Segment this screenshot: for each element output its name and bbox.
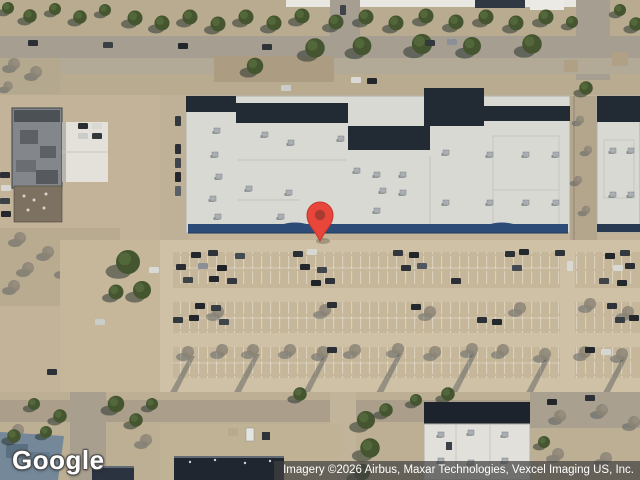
pin-dot	[315, 210, 325, 220]
imagery-attribution: Imagery ©2026 Airbus, Maxar Technologies…	[274, 461, 640, 480]
parking-lot	[47, 240, 640, 400]
strip-mall-building	[160, 81, 597, 249]
pin-shadow	[316, 238, 330, 244]
map-viewport[interactable]: Google Imagery ©2026 Airbus, Maxar Techn…	[0, 0, 640, 480]
satellite-imagery[interactable]	[0, 0, 640, 480]
google-logo[interactable]: Google	[12, 445, 105, 476]
right-building	[597, 96, 640, 232]
